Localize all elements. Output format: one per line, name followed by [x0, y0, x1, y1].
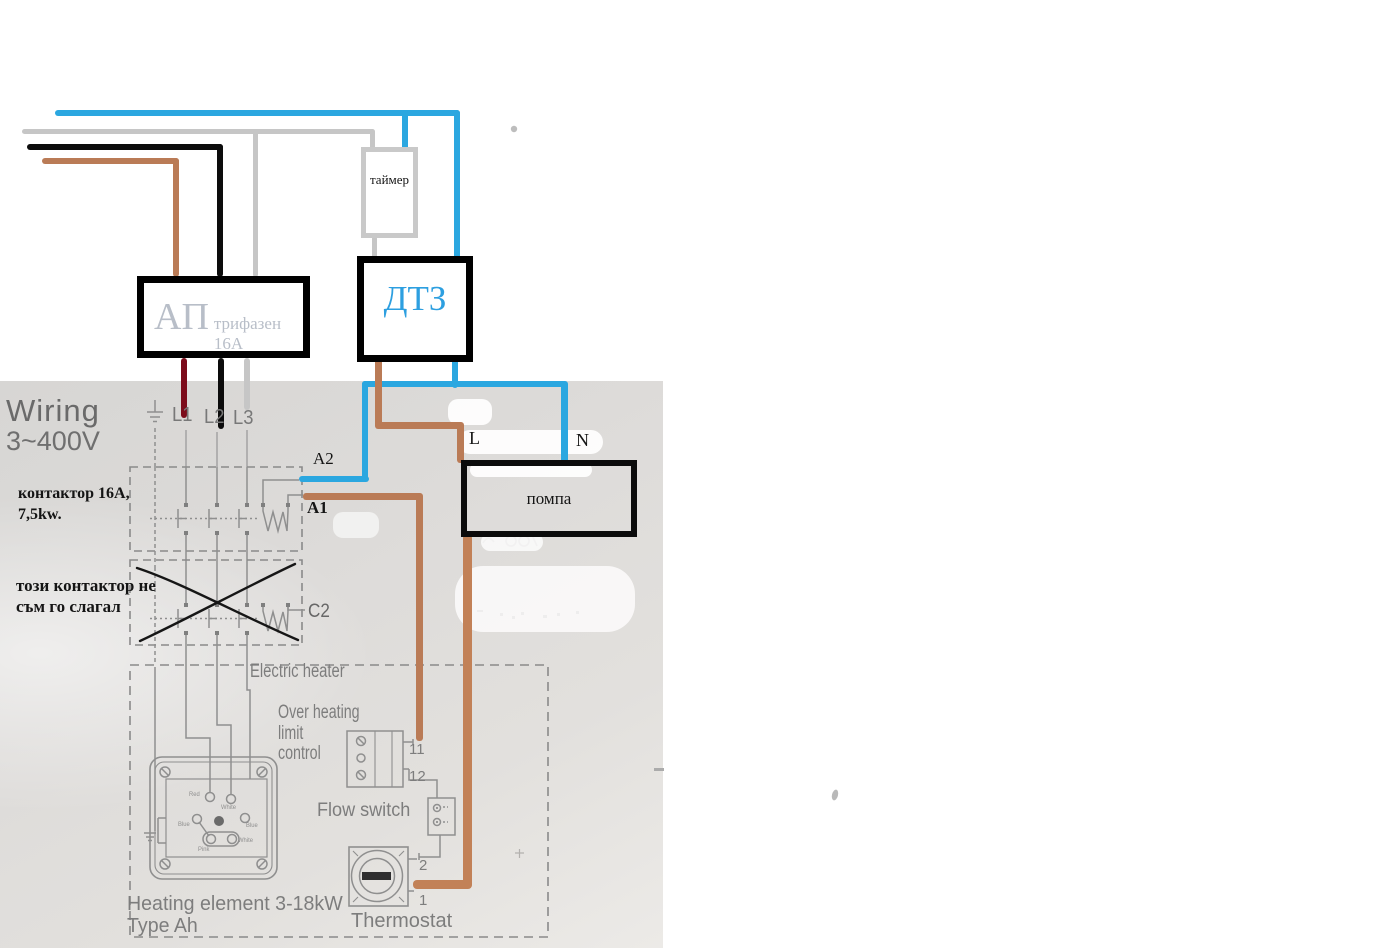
pump-box: помпа [461, 460, 637, 537]
wire-black-to-ap [217, 144, 223, 277]
pump-n-terminal-label: N [576, 430, 589, 451]
printed-diagram-lines [0, 0, 1377, 948]
a1-terminal-label: A1 [307, 498, 328, 518]
whiteout-patch [455, 566, 635, 632]
terminal-11-label: 11 [409, 742, 425, 758]
c2-terminal-label: C2 [308, 602, 330, 623]
crossed-contactor-note: този контактор не съм го слагал [16, 575, 156, 618]
whiteout-patch [333, 512, 379, 538]
heating-element-label: Heating element 3-18kW Type Ah [127, 893, 343, 938]
element-pin-white-bottom: White [238, 837, 253, 844]
wire-brown-top-horizontal [42, 158, 179, 164]
wiring-voltage: 3~400V [6, 427, 100, 456]
wire-gray-top-horizontal [22, 129, 374, 134]
ap-breaker-box: АП трифазен 16А [137, 276, 310, 358]
stray-speck [511, 126, 517, 132]
terminal-1-label: 1 [419, 893, 427, 909]
timer-box: таймер [361, 147, 418, 238]
a2-terminal-label: A2 [313, 449, 334, 469]
wire-blue-to-dtz [454, 110, 460, 260]
pump-l-terminal-label: L [469, 428, 480, 449]
dtz-label: ДТЗ [364, 263, 466, 319]
flow-switch-label: Flow switch [317, 801, 410, 822]
phase-label-l2: L2 [204, 407, 224, 429]
over-heating-label: Over heating limit control [278, 703, 360, 765]
wire-brown-to-terminal-11 [416, 493, 423, 741]
wire-blue-top-horizontal [55, 110, 460, 116]
contactor-note: контактор 16А, 7,5kw. [18, 484, 130, 526]
dtz-box: ДТЗ [357, 256, 473, 362]
ap-sub-label: трифазен 16А [214, 314, 303, 354]
element-pin-red: Red [189, 791, 200, 798]
wire-blue-to-pump-n [561, 381, 568, 463]
phase-label-l1: L1 [172, 405, 192, 427]
element-pin-pink: Pink [198, 846, 209, 853]
wire-brown-dtz-out [375, 358, 382, 428]
phase-label-l3: L3 [233, 408, 253, 430]
element-pin-white-top: White [221, 804, 236, 811]
wire-blue-a2-horizontal [299, 476, 369, 482]
wire-black-top-horizontal [27, 144, 223, 150]
element-pin-blue-left: Blue [178, 821, 190, 828]
thermostat-label: Thermostat [351, 911, 452, 933]
wire-blue-mid-horizontal [362, 381, 566, 387]
wire-brown-mid-horizontal [375, 422, 463, 429]
electric-heater-label: Electric heater [250, 662, 345, 683]
wire-brown-to-ap [173, 158, 179, 277]
timer-label: таймер [366, 152, 413, 188]
wire-brown-to-pump-l [457, 422, 464, 463]
element-pin-blue-right: Blue [246, 822, 258, 829]
wiring-diagram-canvas: таймер ДТЗ АП трифазен 16А помпа контакт… [0, 0, 1377, 948]
wire-brown-thermostat-horizontal [413, 880, 472, 889]
wire-brown-pump-to-thermostat [463, 534, 472, 888]
stray-speck [831, 789, 839, 801]
pump-label: помпа [527, 489, 572, 509]
terminal-2-label: 2 [419, 858, 427, 874]
wiring-title: Wiring [6, 394, 100, 427]
wire-gray-to-ap [253, 129, 258, 277]
wire-blue-to-timer [402, 110, 408, 150]
wire-gray-ap-to-l3 [244, 358, 250, 410]
ap-label: АП [154, 295, 209, 339]
terminal-12-label: 12 [409, 769, 426, 785]
wire-blue-to-a2-vertical [362, 381, 368, 481]
